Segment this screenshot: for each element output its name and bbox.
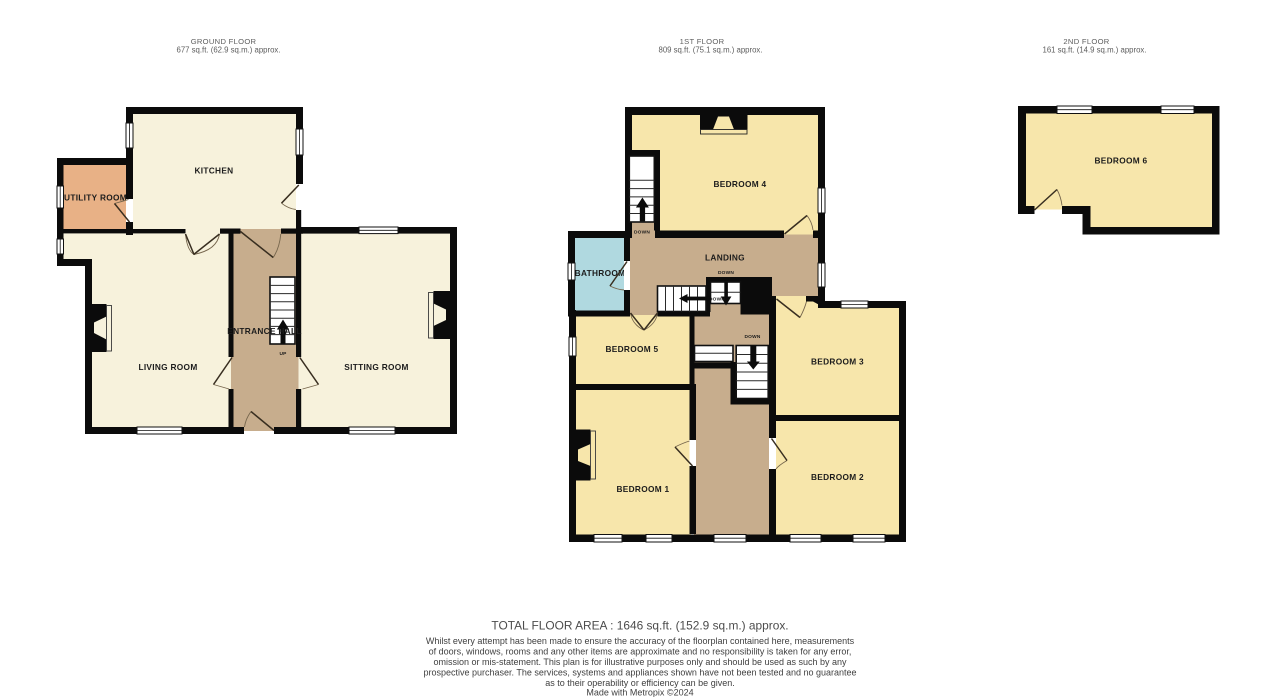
svg-text:Whilst every attempt has been: Whilst every attempt has been made to en… xyxy=(426,636,855,646)
svg-text:DOWN: DOWN xyxy=(634,230,650,236)
svg-text:BEDROOM 3: BEDROOM 3 xyxy=(811,357,864,367)
svg-text:BEDROOM 4: BEDROOM 4 xyxy=(714,179,767,189)
svg-text:UP: UP xyxy=(279,351,287,357)
svg-text:TOTAL FLOOR AREA : 1646 sq.ft.: TOTAL FLOOR AREA : 1646 sq.ft. (152.9 sq… xyxy=(491,619,788,633)
svg-text:ENTRANCE HALL: ENTRANCE HALL xyxy=(227,326,301,336)
svg-text:BEDROOM 2: BEDROOM 2 xyxy=(811,472,864,482)
svg-text:KITCHEN: KITCHEN xyxy=(195,166,234,176)
svg-text:BEDROOM 1: BEDROOM 1 xyxy=(617,484,670,494)
svg-text:UTILITY ROOM: UTILITY ROOM xyxy=(64,193,127,203)
svg-text:prospective purchaser. The ser: prospective purchaser. The services, sys… xyxy=(423,668,856,678)
svg-text:677 sq.ft. (62.9 sq.m.) approx: 677 sq.ft. (62.9 sq.m.) approx. xyxy=(176,46,280,55)
svg-text:BATHROOM: BATHROOM xyxy=(575,268,626,278)
svg-text:of doors, windows, rooms and a: of doors, windows, rooms and any other i… xyxy=(429,647,852,657)
svg-text:DOWN: DOWN xyxy=(745,334,761,340)
svg-text:Made with Metropix ©2024: Made with Metropix ©2024 xyxy=(586,688,693,697)
svg-text:DOWN: DOWN xyxy=(718,270,734,276)
svg-text:LIVING ROOM: LIVING ROOM xyxy=(138,362,197,372)
svg-text:LANDING: LANDING xyxy=(705,253,745,263)
svg-text:809 sq.ft. (75.1 sq.m.) approx: 809 sq.ft. (75.1 sq.m.) approx. xyxy=(658,46,762,55)
svg-text:as to their operability or eff: as to their operability or efficiency ca… xyxy=(545,678,734,688)
svg-text:omission or mis-statement. Thi: omission or mis-statement. This plan is … xyxy=(433,657,847,667)
svg-text:DOWN: DOWN xyxy=(709,297,725,303)
svg-text:BEDROOM 5: BEDROOM 5 xyxy=(606,344,659,354)
svg-text:BEDROOM 6: BEDROOM 6 xyxy=(1095,156,1148,166)
svg-text:SITTING ROOM: SITTING ROOM xyxy=(344,362,408,372)
svg-text:161 sq.ft. (14.9 sq.m.) approx: 161 sq.ft. (14.9 sq.m.) approx. xyxy=(1042,46,1146,55)
